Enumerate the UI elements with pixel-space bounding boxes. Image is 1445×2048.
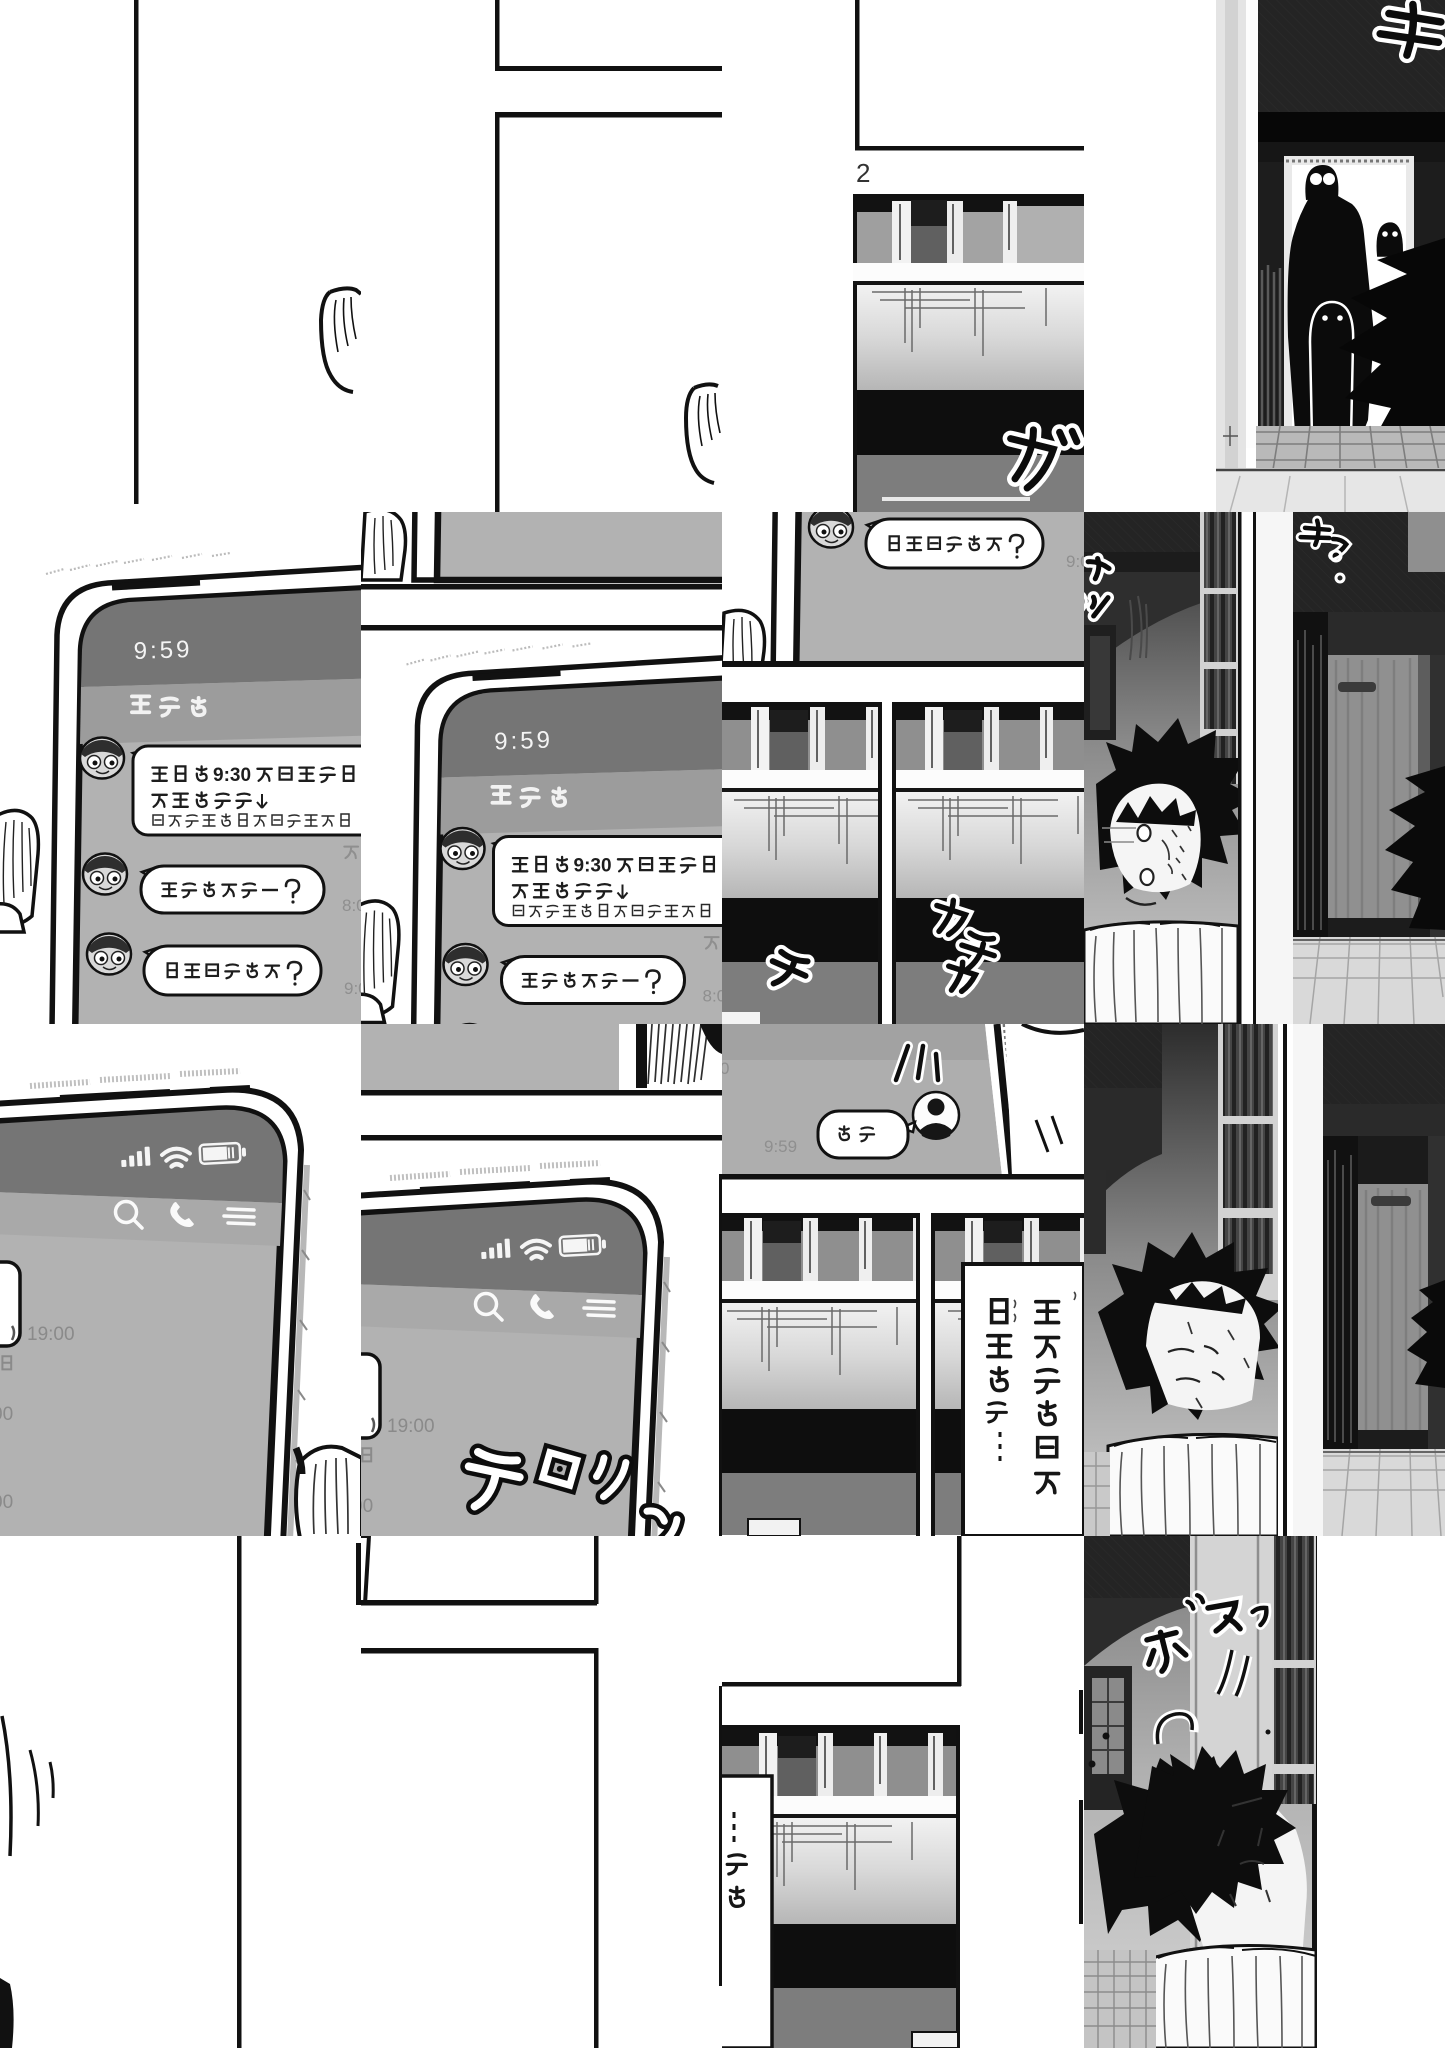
svg-text:9:59: 9:59 [764,1137,797,1156]
svg-text:2: 2 [856,158,870,188]
